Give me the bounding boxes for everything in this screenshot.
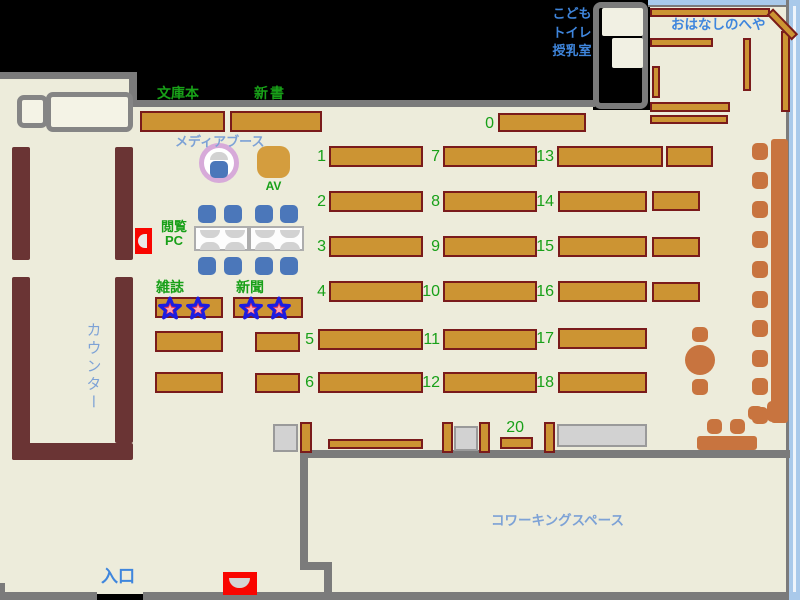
label-kids: こども: [549, 7, 595, 21]
bookshelf: [442, 422, 453, 453]
book-return-box: [135, 228, 152, 254]
stool: [752, 378, 768, 395]
bookshelf: [650, 115, 728, 124]
shelf-number-label-0: 0: [468, 115, 494, 133]
chair: [224, 257, 242, 275]
reading-table: [194, 226, 249, 251]
bookshelf: [479, 422, 490, 453]
label-paperbacks: 文庫本: [157, 86, 199, 101]
label-story-room: おはなしのへや: [671, 18, 766, 33]
label-av: AV: [257, 180, 290, 193]
reading-table: [249, 226, 304, 251]
av-booth: [257, 146, 290, 178]
shelf-11: [443, 329, 537, 350]
star-icon: [185, 296, 211, 322]
book-return-post: [223, 572, 257, 595]
stool: [748, 406, 763, 420]
label-nursing-room: 授乳室: [548, 44, 596, 58]
shelf-4: [329, 281, 423, 302]
stool: [752, 320, 768, 337]
return-slot: [229, 578, 250, 588]
label-toilet: トイレ: [549, 26, 595, 40]
shelf-14: [652, 191, 700, 211]
shelf-17: [558, 328, 647, 349]
counter-block: [12, 443, 133, 460]
shelf-number-label-7: 7: [414, 148, 440, 166]
stool: [692, 327, 708, 342]
window-bench: [771, 139, 788, 423]
seat-mark: [280, 242, 300, 250]
chair: [224, 205, 242, 223]
shelf-8: [443, 191, 537, 212]
shelf-16: [652, 282, 700, 302]
label-counter: カウンター: [84, 322, 101, 412]
bench: [697, 436, 757, 450]
shelf-number-label-12: 12: [414, 374, 440, 392]
kids-toilet-room: [602, 8, 643, 36]
shelf-9: [443, 236, 537, 257]
label-new-books: 新書: [254, 86, 286, 101]
label-media-booth: メディアブース: [175, 135, 264, 149]
shelf-1: [329, 146, 423, 167]
shelf-5: [318, 329, 423, 350]
window-stripe: [793, 6, 796, 592]
seat-mark: [255, 242, 275, 250]
stool: [752, 231, 768, 248]
shelf-number-label-20: 20: [498, 419, 524, 437]
shelf-number-label-8: 8: [414, 193, 440, 211]
shelf-7: [443, 146, 537, 167]
seat-mark: [200, 242, 220, 250]
shelf-number-label-18: 18: [528, 374, 554, 392]
media-chair: [210, 161, 228, 178]
shelf-20: [500, 437, 533, 449]
shelf-13: [557, 146, 663, 167]
counter-block: [12, 277, 30, 460]
stool: [767, 401, 788, 422]
stool: [752, 172, 768, 189]
bookshelf: [650, 102, 730, 112]
service-desk: [46, 92, 133, 132]
shelf-14: [558, 191, 647, 212]
shelf-6: [318, 372, 423, 393]
wall: [300, 450, 308, 570]
stool: [692, 379, 708, 395]
counter-block: [115, 147, 133, 260]
label-magazines: 雑誌: [156, 280, 184, 295]
bookshelf: [743, 38, 751, 91]
service-desk: [17, 95, 48, 128]
shelf-number-label-3: 3: [300, 238, 326, 256]
chair: [198, 257, 216, 275]
equipment-box: [273, 424, 298, 452]
wall: [0, 592, 97, 600]
bookshelf: [652, 66, 660, 98]
star-icon: [266, 296, 292, 322]
shelf-18: [558, 372, 647, 393]
label-coworking-space: コワーキングスペース: [450, 514, 665, 529]
star-icon: [238, 296, 264, 322]
chair: [198, 205, 216, 223]
star-icon: [157, 296, 183, 322]
chair: [255, 205, 273, 223]
shelf-number-label-13: 13: [528, 148, 554, 166]
stool: [752, 261, 768, 278]
label-reading-pc-line1: 閲覧: [156, 220, 192, 234]
stool: [752, 291, 768, 308]
seat-mark: [255, 230, 275, 238]
seat-mark: [280, 230, 300, 238]
shelf-number-label-15: 15: [528, 238, 554, 256]
shelf-number-label-17: 17: [528, 330, 554, 348]
shelf-number-label-4: 4: [300, 283, 326, 301]
seat-mark: [225, 242, 245, 250]
shelf-number-label-16: 16: [528, 283, 554, 301]
chair: [255, 257, 273, 275]
bookshelf: [300, 422, 312, 453]
shelf-15: [558, 236, 647, 257]
bookshelf: [230, 111, 322, 132]
seat-mark: [200, 230, 220, 238]
bookshelf: [328, 439, 423, 449]
shelf-number-label-1: 1: [300, 148, 326, 166]
bookshelf: [650, 8, 770, 17]
wall: [648, 5, 789, 7]
bookshelf: [544, 422, 555, 453]
shelf-10: [443, 281, 537, 302]
chair: [280, 257, 298, 275]
nursing-room: [612, 38, 643, 68]
label-entrance: 入口: [101, 568, 135, 587]
counter-block: [115, 277, 133, 443]
shelf-0: [498, 113, 586, 132]
bookshelf: [781, 31, 790, 112]
bookshelf: [140, 111, 225, 132]
label-reading-pc-line2: PC: [156, 234, 192, 248]
stool: [752, 201, 768, 218]
wall: [0, 583, 5, 592]
shelf-number-label-2: 2: [300, 193, 326, 211]
shelf-number-label-11: 11: [414, 331, 440, 349]
label-newspapers: 新聞: [236, 280, 264, 295]
shelf-3: [329, 236, 423, 257]
round-table: [685, 345, 715, 375]
counter-block: [12, 147, 30, 260]
shelf-number-label-10: 10: [414, 283, 440, 301]
wall: [324, 562, 332, 600]
shelf-number-label-5: 5: [288, 331, 314, 349]
equipment-box: [454, 426, 478, 451]
bookshelf: [650, 38, 713, 47]
media-desk: [210, 152, 228, 160]
shelf-number-label-9: 9: [414, 238, 440, 256]
equipment-box: [557, 424, 647, 447]
stool: [752, 350, 768, 367]
backdrop-area: [0, 0, 140, 75]
stool: [730, 419, 745, 434]
shelf-12: [443, 372, 537, 393]
stool: [707, 419, 722, 434]
bookshelf: [155, 372, 223, 393]
shelf-number-label-6: 6: [288, 374, 314, 392]
wall: [0, 72, 136, 79]
label-reading-pc: 閲覧 PC: [156, 220, 192, 249]
seat-mark: [225, 230, 245, 238]
chair: [280, 205, 298, 223]
shelf-15: [652, 237, 700, 257]
shelf-number-label-14: 14: [528, 193, 554, 211]
stool: [752, 143, 768, 160]
shelf-16: [558, 281, 647, 302]
library-floor-map: 文庫本 新書 メディアブース AV 閲覧 PC 雑誌 新聞 カウンター 入口 コ…: [0, 0, 800, 600]
bookshelf: [155, 331, 223, 352]
shelf-13: [666, 146, 713, 167]
return-slot: [138, 234, 147, 248]
shelf-2: [329, 191, 423, 212]
